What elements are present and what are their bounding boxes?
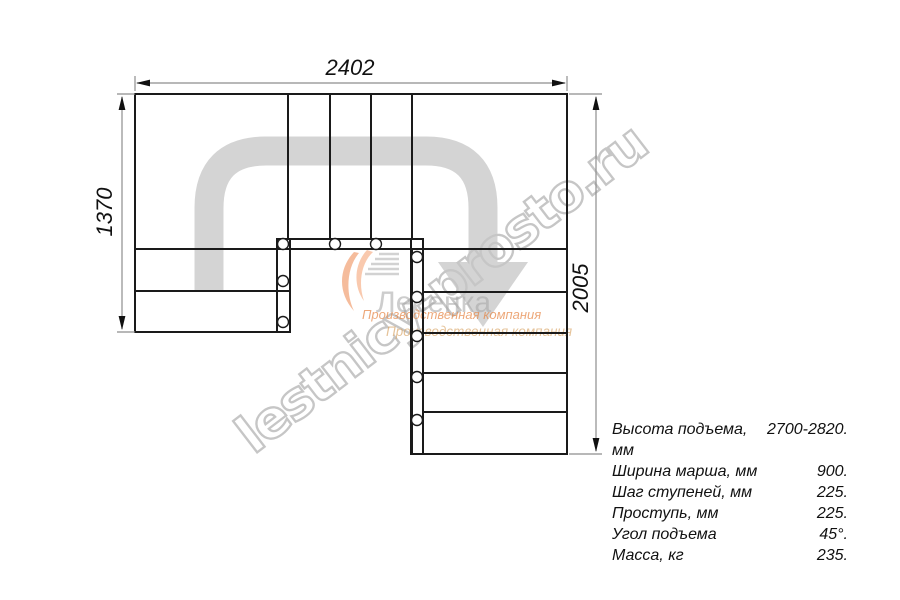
brand-tagline-1: Производственная компания (362, 307, 541, 322)
spec-label: Угол подъема (612, 524, 717, 545)
spec-row: Шаг ступеней, мм 225. (612, 482, 848, 503)
specs-table: Высота подъема, мм 2700-2820. Ширина мар… (612, 419, 848, 566)
spec-label: Высота подъема, мм (612, 419, 767, 461)
spec-value: 900. (817, 461, 848, 482)
spec-label: Шаг ступеней, мм (612, 482, 752, 503)
railing-band (277, 239, 423, 249)
spec-row: Ширина марша, мм 900. (612, 461, 848, 482)
spec-value: 235. (817, 545, 848, 566)
spec-label: Ширина марша, мм (612, 461, 757, 482)
logo-stairs-icon (365, 254, 399, 274)
dim-width-label: 2402 (325, 55, 375, 80)
stair-plan-page: lestnicy-prosto.ru Лесенка Производствен… (0, 0, 900, 600)
spec-label: Проступь, мм (612, 503, 718, 524)
spec-row: Проступь, мм 225. (612, 503, 848, 524)
logo-swoosh-icon (342, 250, 373, 311)
spec-value: 2700-2820. (767, 419, 848, 461)
spec-value: 225. (817, 482, 848, 503)
spec-value: 45°. (819, 524, 848, 545)
spec-label: Масса, кг (612, 545, 684, 566)
dim-left-label: 1370 (92, 187, 117, 237)
spec-row: Угол подъема 45°. (612, 524, 848, 545)
spec-row: Масса, кг 235. (612, 545, 848, 566)
dim-right-label: 2005 (568, 263, 593, 314)
spec-value: 225. (817, 503, 848, 524)
spec-row: Высота подъема, мм 2700-2820. (612, 419, 848, 461)
